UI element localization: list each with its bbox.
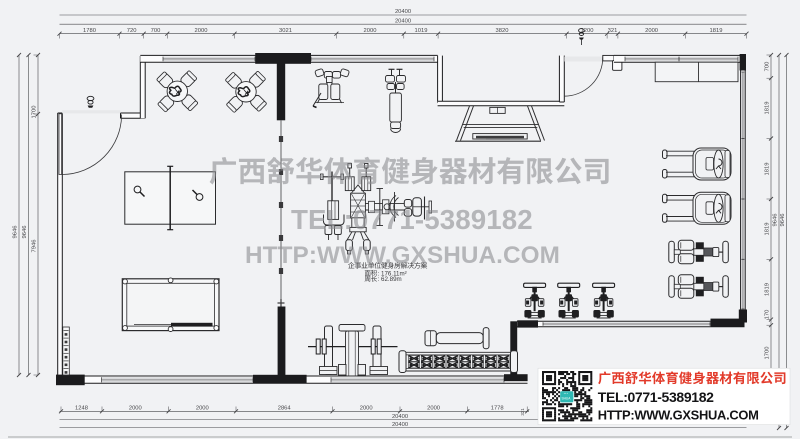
svg-text:9646: 9646 [780, 214, 786, 227]
svg-text:TEL:0771-5389182: TEL:0771-5389182 [598, 389, 714, 405]
svg-text:170: 170 [765, 310, 771, 320]
svg-text:1819: 1819 [765, 283, 771, 296]
svg-text:HTTP:WWW.GXSHUA.COM: HTTP:WWW.GXSHUA.COM [245, 242, 560, 269]
svg-text:20400: 20400 [392, 414, 408, 420]
svg-text:1019: 1019 [415, 28, 428, 34]
svg-text:HTTP:WWW.GXSHUA.COM: HTTP:WWW.GXSHUA.COM [598, 407, 759, 422]
svg-text:1819: 1819 [765, 163, 771, 176]
svg-text:2000: 2000 [360, 405, 373, 411]
svg-text:700: 700 [151, 28, 161, 34]
svg-text:1819: 1819 [710, 28, 723, 34]
svg-text:TEL:0771-5389182: TEL:0771-5389182 [291, 204, 533, 235]
svg-text:1780: 1780 [83, 28, 96, 34]
svg-text:2000: 2000 [645, 28, 658, 34]
svg-text:: 62.89m: : 62.89m [378, 276, 402, 283]
svg-text:2864: 2864 [278, 405, 292, 411]
svg-text:3021: 3021 [279, 28, 292, 34]
svg-text:2000: 2000 [195, 28, 208, 34]
svg-text:20400: 20400 [395, 18, 411, 24]
svg-text:1700: 1700 [32, 106, 38, 119]
svg-text:321: 321 [520, 408, 525, 416]
svg-text:2000: 2000 [129, 405, 142, 411]
svg-text:1819: 1819 [765, 102, 771, 115]
svg-text:720: 720 [127, 28, 137, 34]
svg-text:3820: 3820 [496, 28, 509, 34]
svg-text:20400: 20400 [395, 9, 411, 15]
svg-text:321: 321 [608, 28, 618, 34]
svg-text:9646: 9646 [13, 226, 19, 239]
svg-text:9646: 9646 [22, 226, 28, 239]
svg-text:1819: 1819 [765, 223, 771, 236]
svg-text:7946: 7946 [32, 240, 38, 253]
svg-text:700: 700 [765, 62, 771, 72]
svg-text:20400: 20400 [392, 422, 408, 428]
svg-text:SHUA: SHUA [561, 397, 571, 401]
svg-text:2000: 2000 [427, 405, 440, 411]
svg-text:···: ··· [564, 391, 569, 396]
svg-text:2000: 2000 [196, 405, 209, 411]
svg-text:2000: 2000 [364, 28, 377, 34]
svg-text:9646: 9646 [773, 214, 779, 227]
svg-text:1778: 1778 [491, 405, 504, 411]
svg-text:1248: 1248 [75, 405, 88, 411]
svg-text:1700: 1700 [765, 347, 771, 360]
